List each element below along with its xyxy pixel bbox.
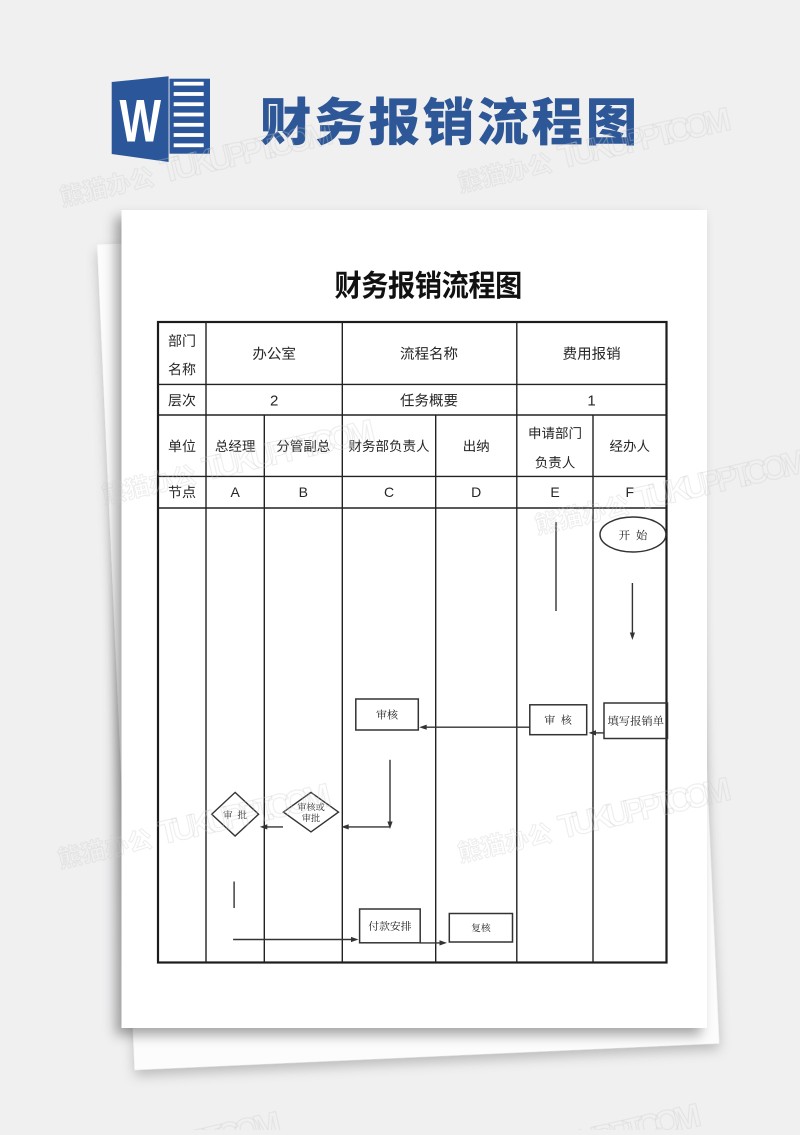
svg-text:C: C	[384, 484, 394, 500]
svg-text:W: W	[119, 87, 161, 155]
svg-text:B: B	[299, 484, 308, 500]
svg-text:2: 2	[270, 392, 278, 409]
svg-text:E: E	[550, 484, 559, 500]
svg-text:1: 1	[587, 392, 595, 409]
svg-text:D: D	[471, 484, 481, 500]
svg-text:A: A	[231, 484, 241, 500]
